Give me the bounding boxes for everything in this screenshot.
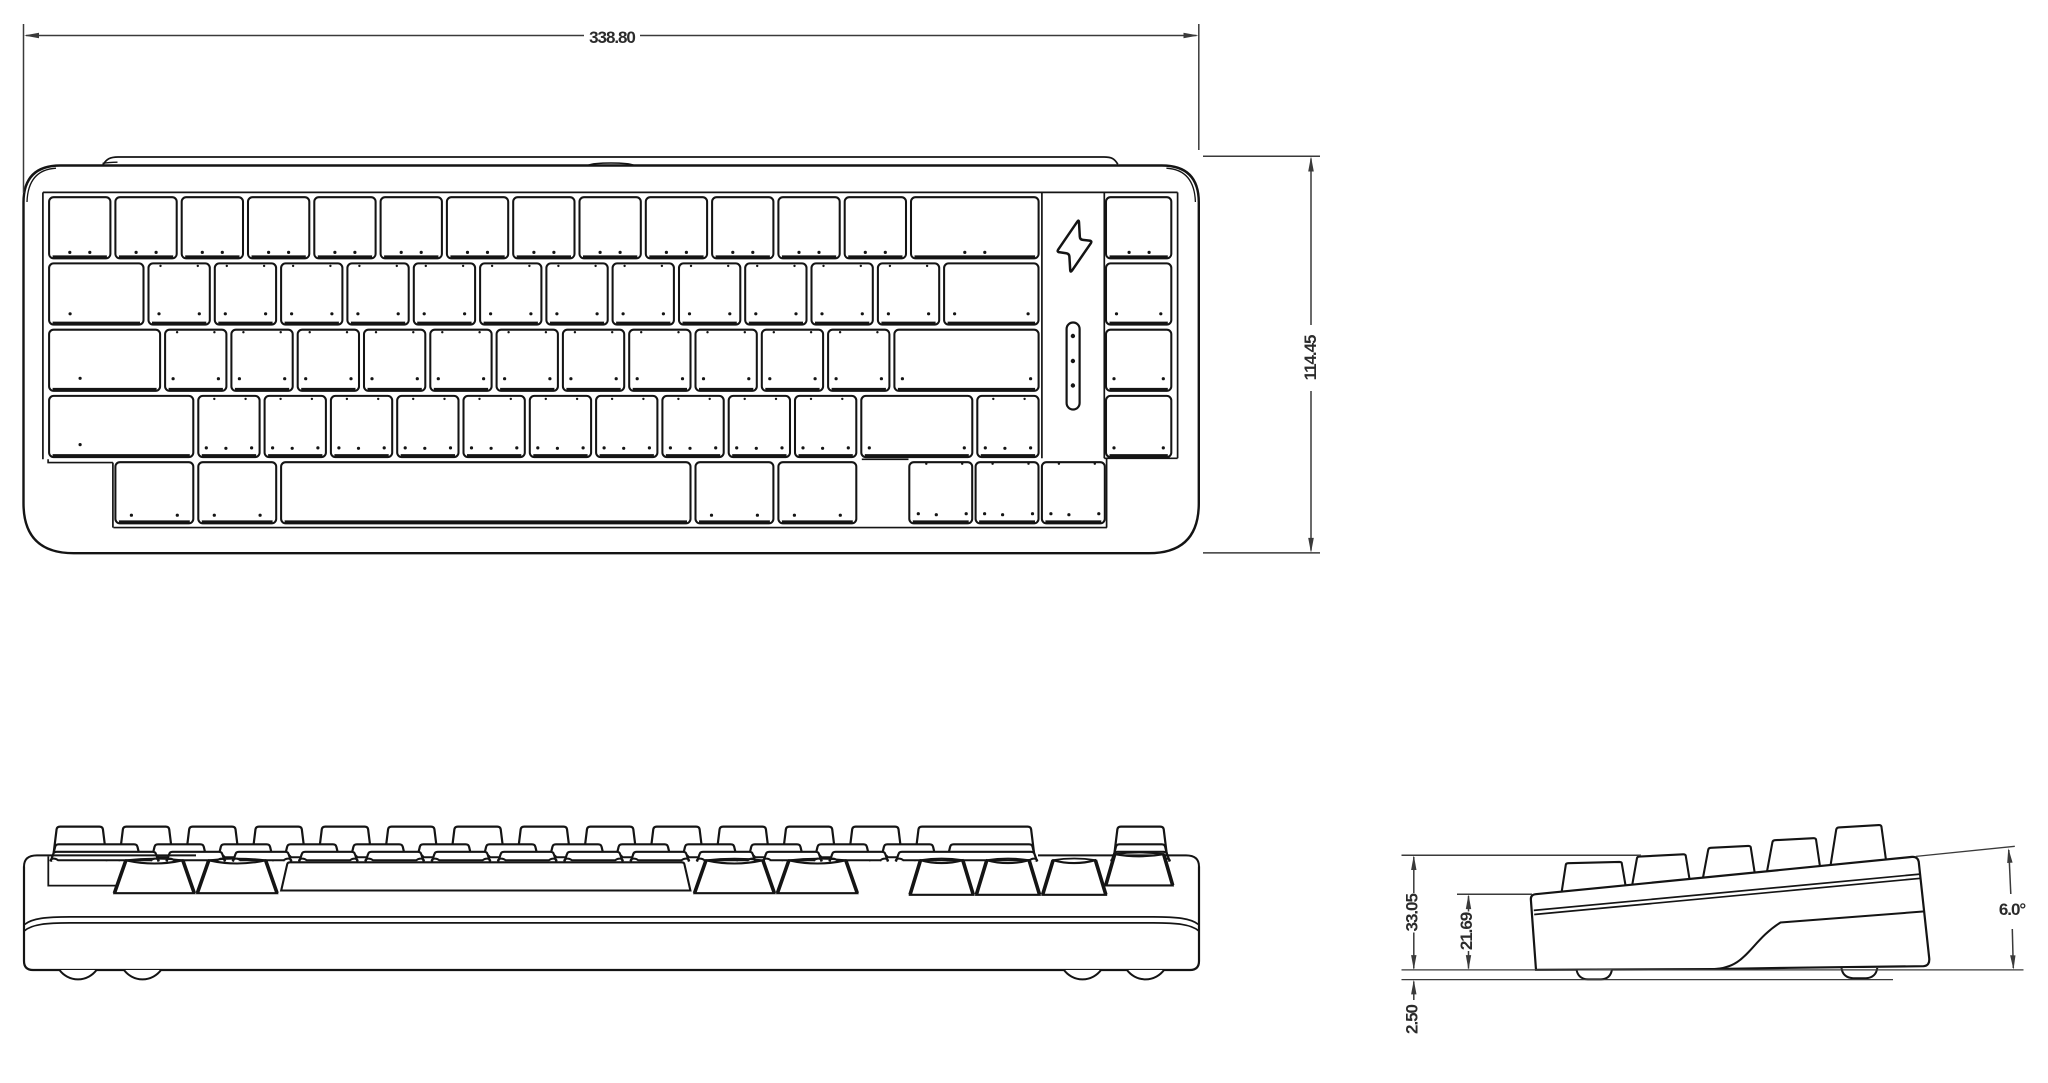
svg-text:338.80: 338.80 (589, 28, 635, 47)
svg-text:21.69: 21.69 (1457, 912, 1476, 950)
svg-text:6.0°: 6.0° (1999, 900, 2026, 919)
svg-text:2.50: 2.50 (1403, 1004, 1422, 1033)
svg-text:114.45: 114.45 (1301, 335, 1320, 380)
svg-text:33.05: 33.05 (1403, 894, 1422, 932)
